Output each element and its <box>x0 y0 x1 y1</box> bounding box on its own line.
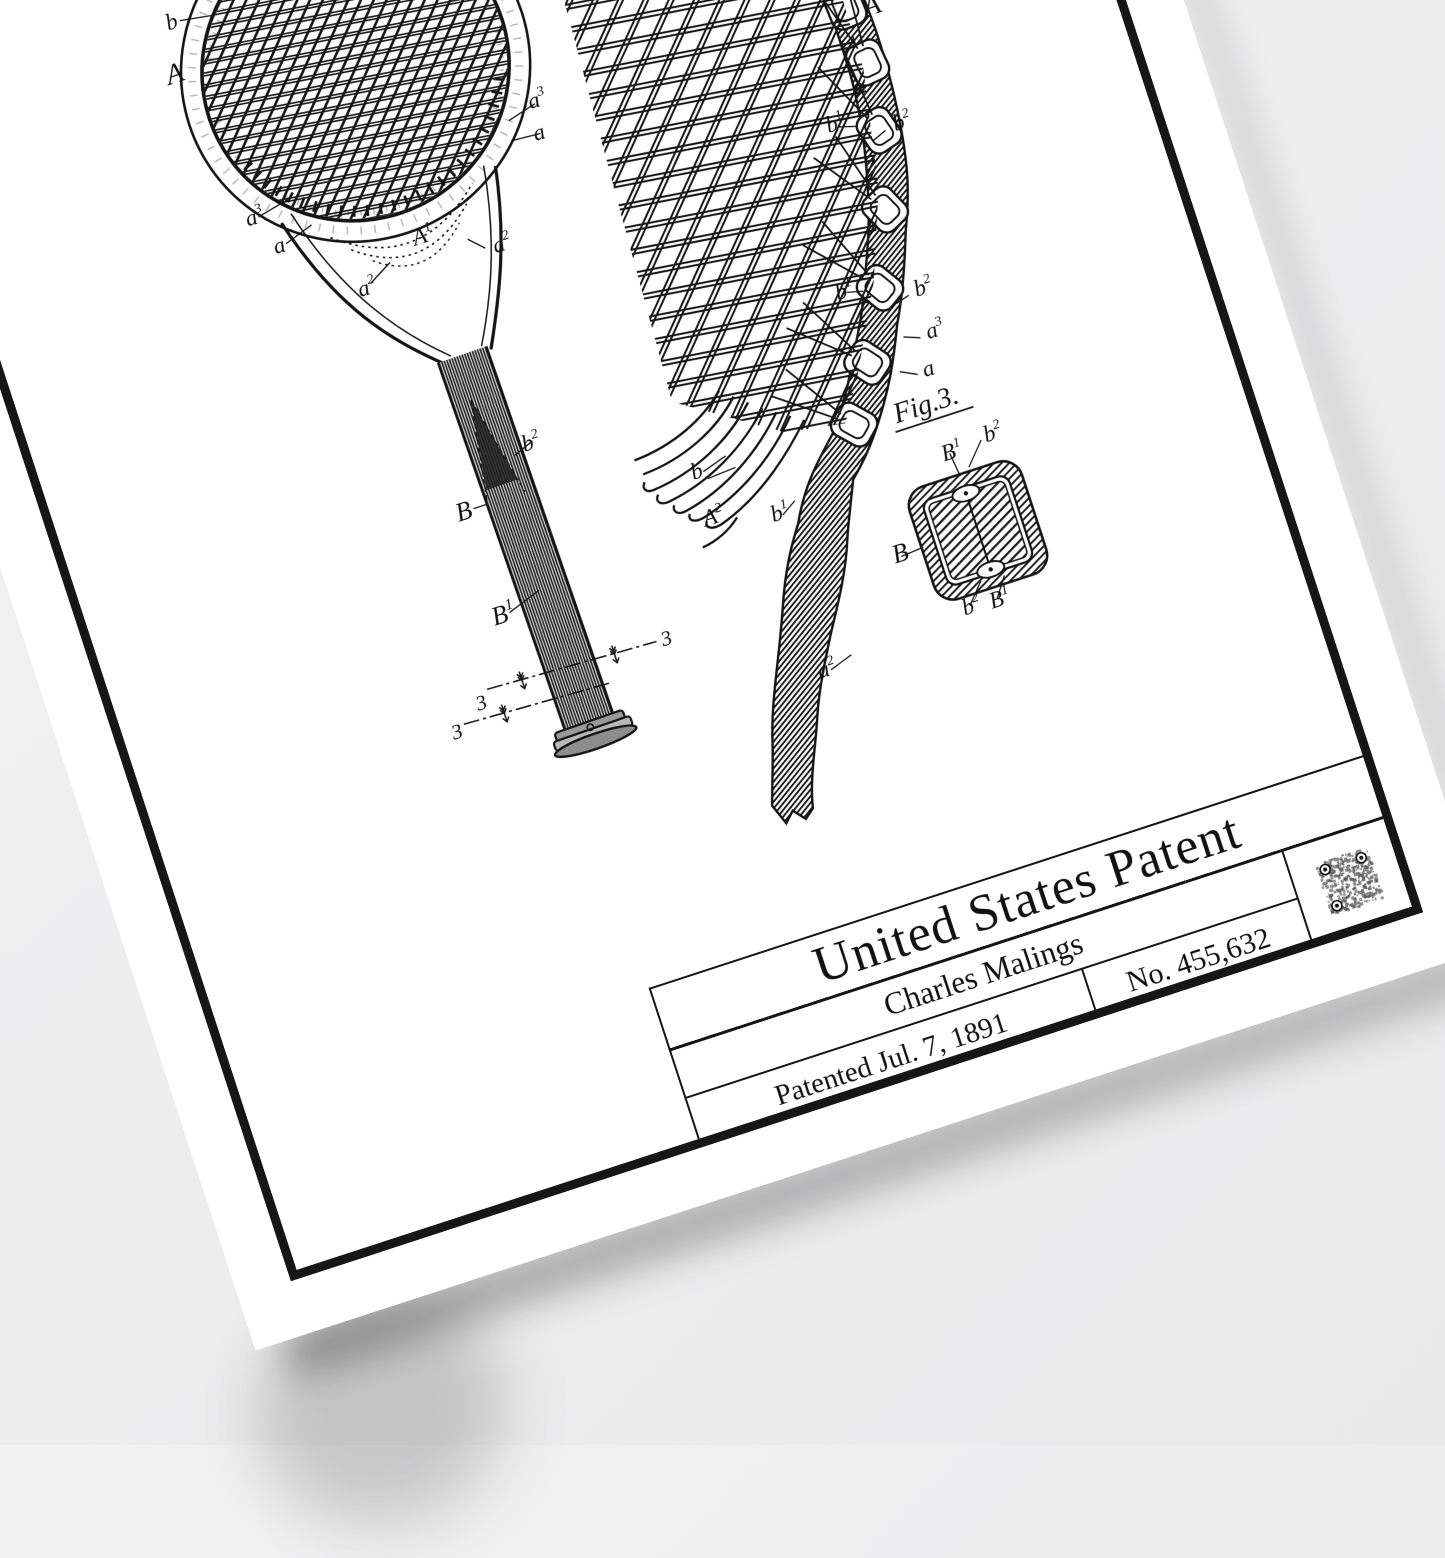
svg-text:b1: b1 <box>822 108 848 138</box>
svg-text:A1: A1 <box>407 220 437 252</box>
svg-text:b: b <box>687 458 706 485</box>
svg-text:b: b <box>162 9 181 36</box>
svg-text:a2: a2 <box>489 228 515 258</box>
svg-text:B1: B1 <box>985 583 1013 614</box>
svg-text:B1: B1 <box>937 435 965 466</box>
svg-text:3: 3 <box>471 690 489 716</box>
svg-text:b2: b2 <box>958 590 984 620</box>
svg-text:A: A <box>160 57 189 93</box>
svg-text:b2: b2 <box>980 417 1006 447</box>
svg-text:3: 3 <box>657 626 675 652</box>
svg-text:b1: b1 <box>767 497 793 527</box>
svg-text:B: B <box>452 495 476 528</box>
svg-text:b2: b2 <box>910 272 936 302</box>
svg-text:a3: a3 <box>524 84 550 114</box>
svg-text:a3: a3 <box>922 314 948 344</box>
svg-text:a: a <box>529 119 548 146</box>
svg-text:a: a <box>270 232 289 259</box>
svg-text:a2: a2 <box>354 272 380 302</box>
svg-text:a: a <box>919 355 938 382</box>
svg-text:B1: B1 <box>487 596 519 632</box>
svg-text:3: 3 <box>447 719 465 745</box>
